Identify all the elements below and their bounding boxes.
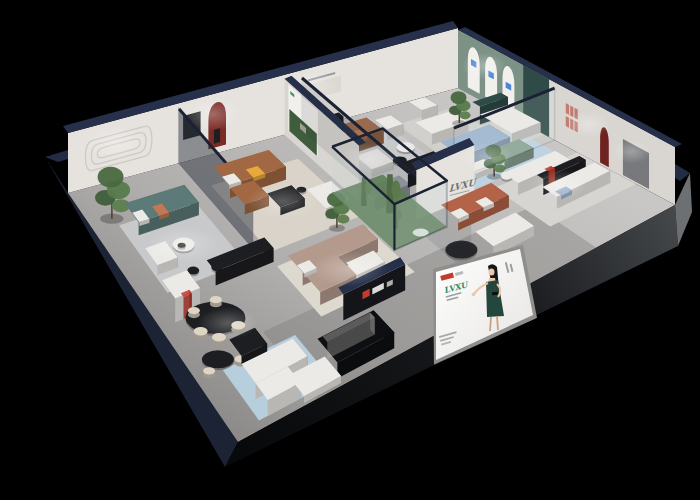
room-d-plant-leaf-3 bbox=[459, 111, 470, 119]
model-face bbox=[489, 268, 495, 275]
floor-glow-2 bbox=[247, 183, 319, 219]
model-belt bbox=[492, 292, 498, 296]
floor-glow-5 bbox=[531, 169, 587, 199]
wall-glow-1 bbox=[87, 126, 143, 160]
floor-glow-4 bbox=[462, 143, 514, 171]
stool-6 bbox=[203, 367, 215, 374]
wall-glow-6 bbox=[612, 140, 652, 164]
floor-glow-7 bbox=[198, 307, 258, 339]
model-hand bbox=[472, 293, 476, 297]
plant-terrarium-cactus-2-arm bbox=[391, 180, 400, 198]
wall-glow-4 bbox=[462, 53, 506, 79]
floorplan-render: LVXU LVXU bbox=[0, 0, 700, 500]
floor-glow-1 bbox=[148, 227, 220, 263]
stool-4 bbox=[188, 307, 200, 314]
room-d-plant-leaf-2 bbox=[451, 91, 467, 104]
wall-glow-5 bbox=[566, 111, 610, 137]
floor-glow-3 bbox=[340, 143, 400, 175]
poster-plant-leaf-3 bbox=[337, 215, 350, 224]
room-a-plant-leaf-2 bbox=[98, 167, 124, 188]
round-table-2 bbox=[202, 350, 234, 368]
showroom-floorplan-stage: LVXU LVXU bbox=[0, 0, 700, 500]
red-frame-1 bbox=[566, 103, 569, 115]
floor-glow-6 bbox=[311, 251, 387, 287]
stool-5 bbox=[210, 296, 222, 303]
